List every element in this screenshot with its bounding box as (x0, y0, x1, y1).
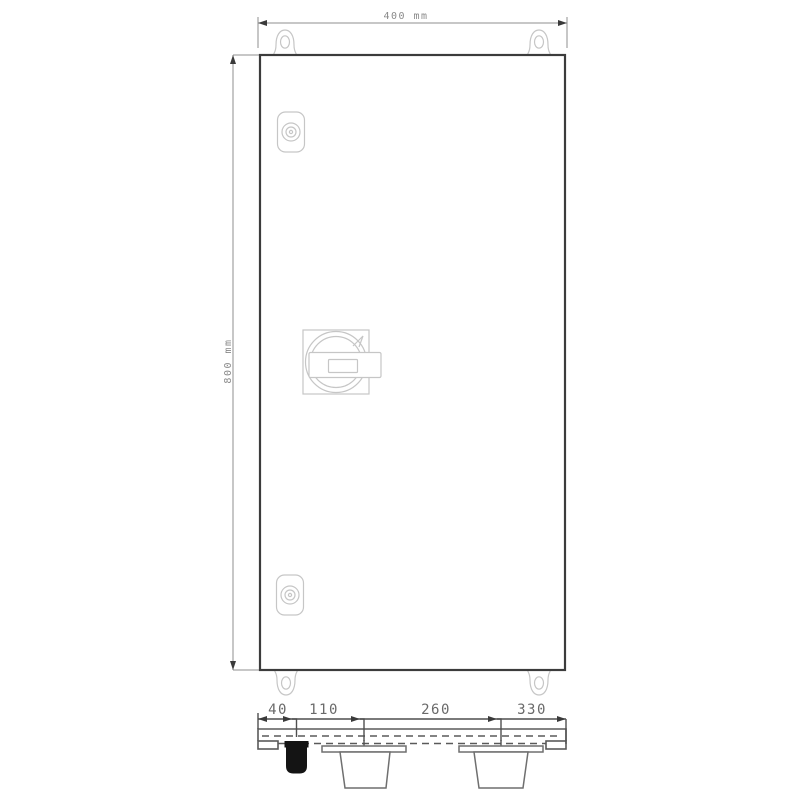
dimension-label-330: 330 (517, 702, 547, 718)
enclosure-technical-drawing: 400 mm 800 mm (0, 0, 800, 800)
dimension-label-110: 110 (309, 702, 339, 718)
front-view: 400 mm 800 mm (223, 11, 567, 695)
gland-body (474, 752, 528, 788)
handle-lever-bar (309, 353, 381, 378)
plate-profile (258, 729, 566, 741)
dimension-label-40: 40 (268, 702, 288, 718)
plate-end-flange-left (258, 741, 278, 749)
gland-flange (459, 746, 543, 752)
leader-hook (497, 719, 501, 741)
lug-body (274, 668, 298, 695)
mounting-lug-bottom-right (527, 668, 551, 695)
leader-hook (292, 719, 297, 737)
bottom-view: 40 110 260 330 (258, 702, 566, 788)
gland-body (340, 752, 390, 788)
width-dimension: 400 mm (258, 11, 567, 48)
lug-body (273, 30, 297, 57)
mounting-lug-top-right (527, 30, 551, 57)
cable-gland-right (459, 740, 543, 788)
leader-hook (360, 719, 364, 741)
lug-body (527, 668, 551, 695)
lug-body (527, 30, 551, 57)
cable-gland-left (322, 740, 406, 788)
bottom-dimensions: 40 110 260 330 (258, 702, 566, 744)
plate-end-flange-right (546, 741, 566, 749)
dimension-label-260: 260 (421, 702, 451, 718)
height-dimension: 800 mm (223, 55, 260, 670)
gland-flange (322, 746, 406, 752)
technical-drawing-page: 400 mm 800 mm (0, 0, 800, 800)
height-dimension-label: 800 mm (223, 338, 234, 383)
small-cable-gland-filled (285, 742, 308, 774)
mounting-lug-top-left (273, 30, 297, 57)
width-dimension-label: 400 mm (383, 11, 428, 22)
mounting-lug-bottom-left (274, 668, 298, 695)
